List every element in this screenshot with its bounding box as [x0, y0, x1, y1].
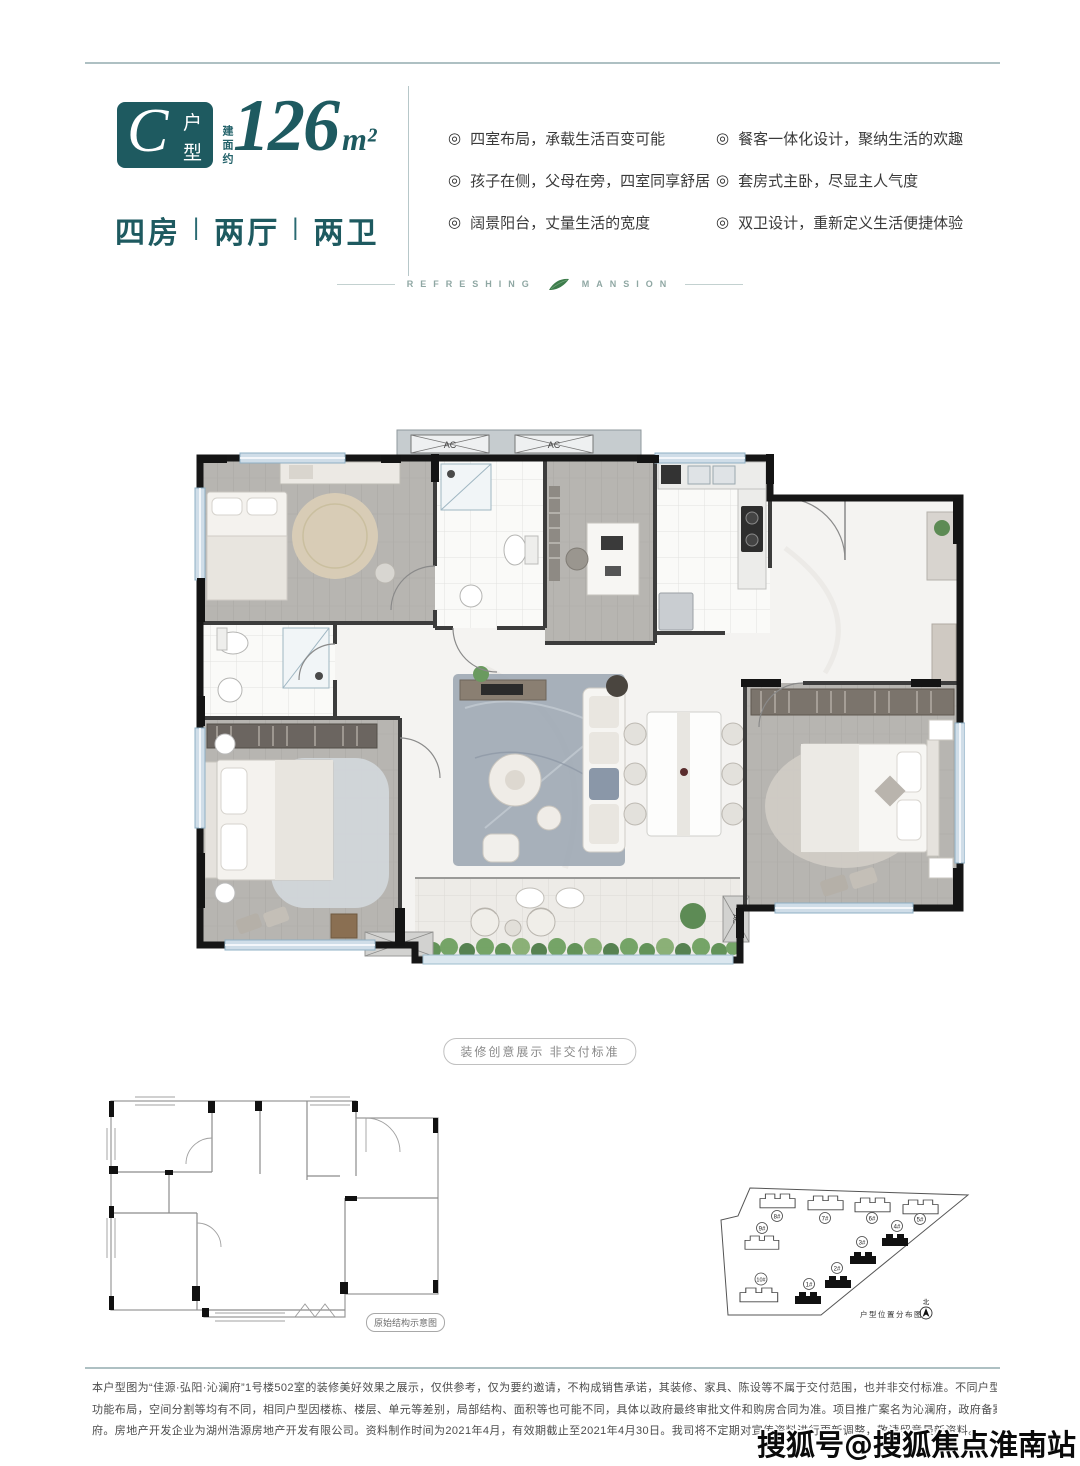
chair-icon	[566, 548, 588, 570]
stool	[331, 914, 357, 938]
unit-type-char-bottom: 型	[183, 138, 202, 165]
svg-text:10#: 10#	[756, 1277, 766, 1283]
toilet-icon	[504, 535, 526, 565]
basin-icon	[556, 888, 584, 908]
rooms-separator: |	[181, 214, 214, 242]
nightstand	[929, 858, 953, 878]
feature-text: 双卫设计，重新定义生活便捷体验	[738, 212, 963, 233]
feature-item: ◎ 餐客一体化设计，聚纳生活的欢趣	[716, 127, 963, 149]
basin-icon	[516, 888, 544, 908]
feature-item: ◎ 四室布局，承载生活百变可能	[448, 127, 710, 149]
building-2-highlighted	[825, 1276, 851, 1288]
brand-word-left: REFRESHING	[407, 279, 536, 289]
bathroom-left	[200, 623, 335, 718]
master-bedroom	[745, 683, 960, 908]
feature-text: 阔景阳台，丈量生活的宽度	[470, 212, 650, 233]
svg-text:AC: AC	[444, 440, 457, 450]
brand-motif: REFRESHING MANSION	[0, 277, 1080, 291]
structure-plan-caption: 原始结构示意图	[366, 1313, 445, 1332]
unit-type-badge: C 户 型	[117, 102, 213, 168]
building-8	[760, 1194, 795, 1208]
motif-line	[685, 284, 743, 285]
top-rule	[85, 62, 1000, 64]
brand-word-right: MANSION	[582, 279, 674, 289]
bed-icon	[207, 492, 287, 600]
feature-text: 套房式主卧，尽显主人气度	[738, 170, 918, 191]
balcony	[415, 878, 740, 960]
leaf-icon	[548, 277, 570, 291]
svg-text:1#: 1#	[806, 1282, 813, 1288]
feature-text: 四室布局，承载生活百变可能	[470, 128, 665, 149]
feature-item: ◎ 阔景阳台，丈量生活的宽度	[448, 211, 710, 233]
svg-text:6#: 6#	[869, 1216, 876, 1222]
kitchen	[655, 458, 770, 633]
ac-closet-top: AC AC	[397, 430, 641, 458]
svg-text:7#: 7#	[822, 1216, 829, 1222]
structure-doors	[186, 1118, 400, 1317]
building-6	[855, 1198, 890, 1212]
footer-rule	[85, 1367, 1000, 1369]
floorplan-image: AC AC 2AC AC	[185, 428, 965, 995]
bedroom-topleft	[200, 458, 435, 623]
fridge-icon	[659, 593, 693, 630]
ring-bullet-icon: ◎	[716, 129, 729, 147]
svg-text:2#: 2#	[834, 1266, 841, 1272]
shower-icon	[447, 470, 455, 478]
svg-text:3#: 3#	[859, 1240, 866, 1246]
rooms-part: 四房	[115, 208, 181, 252]
unit-type-letter: C	[127, 96, 168, 166]
svg-text:AC: AC	[548, 440, 561, 450]
feature-item: ◎ 双卫设计，重新定义生活便捷体验	[716, 211, 963, 233]
svg-text:8#: 8#	[774, 1214, 781, 1220]
bed-icon	[205, 760, 333, 880]
header-divider	[408, 86, 409, 276]
living-room	[453, 666, 628, 866]
ring-bullet-icon: ◎	[448, 213, 461, 231]
beanbag	[606, 675, 628, 697]
disclaimer-line: 功能布局，空间分割等均有不同，相同户型因楼栋、楼层、单元等差别，局部结构、面积等…	[92, 1400, 997, 1422]
siteplan-caption: 户型位置分布图	[860, 1309, 923, 1319]
sink-dark	[661, 465, 681, 484]
ring-bullet-icon: ◎	[716, 171, 729, 189]
ring-bullet-icon: ◎	[716, 213, 729, 231]
svg-text:9#: 9#	[759, 1226, 766, 1232]
sink-icon	[688, 466, 710, 484]
motif-line	[337, 284, 395, 285]
lamp	[215, 734, 235, 754]
structure-plan-image	[105, 1088, 440, 1338]
building-5	[903, 1200, 938, 1214]
features-left: ◎ 四室布局，承载生活百变可能 ◎ 孩子在侧，父母在旁，四室同享舒居 ◎ 阔景阳…	[448, 127, 710, 233]
bed-icon	[801, 740, 939, 856]
svg-text:5#: 5#	[917, 1217, 924, 1223]
dining-area	[624, 712, 744, 836]
building-4-highlighted	[882, 1234, 908, 1246]
rooms-part: 两厅	[214, 208, 280, 252]
plant-icon	[680, 903, 706, 929]
feature-item: ◎ 套房式主卧，尽显主人气度	[716, 169, 963, 191]
study-room	[545, 458, 655, 643]
svg-text:北: 北	[923, 1298, 930, 1306]
structure-outline	[107, 1097, 438, 1321]
building-9	[745, 1236, 779, 1249]
site-buildings	[740, 1194, 938, 1304]
area-unit: m²	[342, 110, 376, 168]
area-group: 126 m²	[233, 84, 376, 168]
disclaimer-line: 本户型图为“佳源·弘阳·沁澜府”1号楼502室的装修美好效果之展示，仅供参考，仅…	[92, 1378, 997, 1400]
features-right: ◎ 餐客一体化设计，聚纳生活的欢趣 ◎ 套房式主卧，尽显主人气度 ◎ 双卫设计，…	[716, 127, 963, 233]
rooms-separator: |	[280, 214, 313, 242]
plant-icon	[473, 666, 489, 682]
round-rug	[292, 493, 378, 579]
watermark: 搜狐号@搜狐焦点淮南站	[757, 1422, 1076, 1464]
bathroom-small	[435, 458, 545, 628]
wardrobe	[751, 689, 954, 715]
desk-icon	[587, 523, 639, 595]
feature-item: ◎ 孩子在侧，父母在旁，四室同享舒居	[448, 169, 710, 191]
floorplan-caption: 装修创意展示 非交付标准	[443, 1038, 636, 1065]
building-10	[740, 1288, 778, 1302]
plant-icon	[934, 520, 950, 536]
siteplan-image: 8# 7# 6# 5# 9# 4# 3# 2# 1# 10# 户型位置分布图 北	[710, 1180, 995, 1330]
feature-text: 餐客一体化设计，聚纳生活的欢趣	[738, 128, 963, 149]
building-3-highlighted	[850, 1252, 876, 1264]
area-value: 126	[233, 84, 338, 168]
rooms-part: 两卫	[313, 208, 379, 252]
armchair-icon	[483, 834, 519, 862]
basin-icon	[460, 585, 482, 607]
building-7	[808, 1196, 843, 1210]
basin-icon	[218, 678, 242, 702]
rooms-subtitle: 四房 | 两厅 | 两卫	[115, 208, 379, 252]
building-1-highlighted	[795, 1292, 821, 1304]
ring-bullet-icon: ◎	[448, 129, 461, 147]
page: C 户 型 建面约 126 m² 四房 | 两厅 | 两卫 ◎ 四室布局，承载生…	[0, 0, 1080, 1466]
unit-type-char-top: 户	[183, 108, 202, 135]
nightstand	[929, 720, 953, 740]
structure-columns	[109, 1101, 438, 1317]
svg-text:4#: 4#	[894, 1224, 901, 1230]
sink-icon	[713, 466, 735, 484]
tv-icon	[481, 684, 523, 695]
bedroom-bottomleft	[200, 718, 400, 945]
feature-text: 孩子在侧，父母在旁，四室同享舒居	[470, 170, 710, 191]
ring-bullet-icon: ◎	[448, 171, 461, 189]
lamp	[215, 883, 235, 903]
